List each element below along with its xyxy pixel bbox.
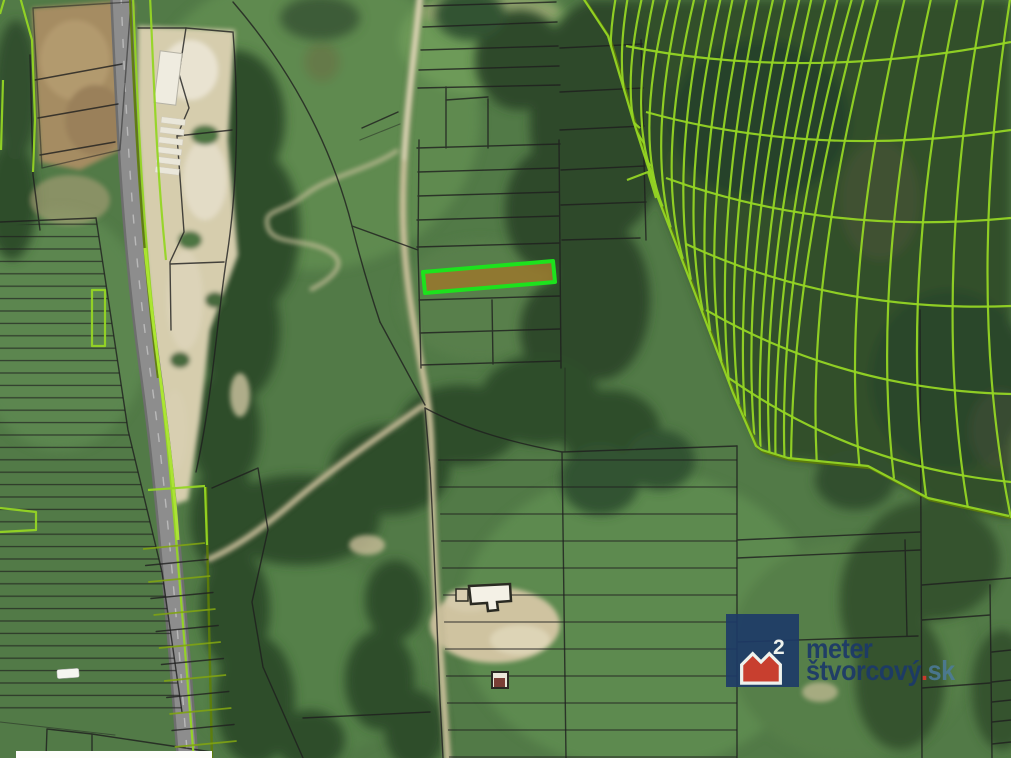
satellite-map-canvas[interactable]	[0, 0, 1011, 758]
imagery-edge	[16, 751, 212, 758]
vehicle	[57, 668, 80, 679]
map-viewport[interactable]: 2 meter štvorcový.sk	[0, 0, 1011, 758]
